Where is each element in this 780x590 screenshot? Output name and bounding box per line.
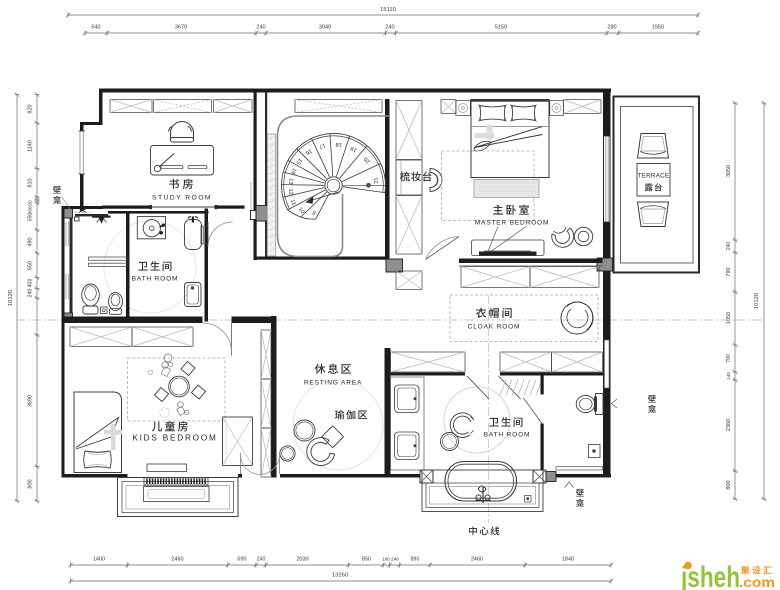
svg-text:650: 650 xyxy=(28,261,34,270)
svg-text:13: 13 xyxy=(287,178,294,185)
svg-text:STUDY ROOM: STUDY ROOM xyxy=(152,195,212,202)
svg-text:890: 890 xyxy=(411,557,420,563)
svg-text:820: 820 xyxy=(28,104,34,113)
svg-text:160: 160 xyxy=(382,557,390,562)
svg-text:2460: 2460 xyxy=(471,557,483,563)
svg-text:240: 240 xyxy=(257,557,266,563)
svg-text:1840: 1840 xyxy=(562,557,574,563)
svg-text:1950: 1950 xyxy=(652,25,664,31)
svg-text:BATH ROOM: BATH ROOM xyxy=(132,276,179,283)
svg-text:650: 650 xyxy=(28,213,34,222)
svg-text:540: 540 xyxy=(91,25,100,31)
svg-text:1140: 1140 xyxy=(28,140,34,152)
svg-text:300(30: 300(30 xyxy=(28,200,33,214)
svg-text:790: 790 xyxy=(726,267,732,276)
svg-text:18: 18 xyxy=(335,141,342,148)
svg-text:2460: 2460 xyxy=(171,557,183,563)
svg-text:3040: 3040 xyxy=(319,25,331,31)
svg-text:850: 850 xyxy=(362,557,371,563)
svg-text:810: 810 xyxy=(28,178,34,187)
svg-text:10120: 10120 xyxy=(754,293,760,309)
svg-text:240: 240 xyxy=(28,289,34,298)
svg-text:10120: 10120 xyxy=(8,290,14,306)
svg-text:280: 280 xyxy=(607,25,616,31)
svg-text:2360: 2360 xyxy=(726,419,732,431)
svg-text:1400: 1400 xyxy=(93,557,105,563)
svg-text:BATH ROOM: BATH ROOM xyxy=(484,432,531,439)
svg-text:690: 690 xyxy=(237,557,246,563)
svg-text:3690: 3690 xyxy=(28,395,34,407)
svg-text:140: 140 xyxy=(726,372,731,380)
svg-text:240: 240 xyxy=(385,25,394,31)
svg-text:3050: 3050 xyxy=(726,165,732,177)
svg-text:CLOAK ROOM: CLOAK ROOM xyxy=(468,324,521,331)
svg-text:TERRACE: TERRACE xyxy=(638,173,670,180)
svg-text:21: 21 xyxy=(373,177,380,184)
svg-text:RESTING AREA: RESTING AREA xyxy=(304,380,362,387)
svg-text:3670: 3670 xyxy=(175,25,187,31)
svg-text:13260: 13260 xyxy=(332,573,348,579)
svg-text:790: 790 xyxy=(726,354,732,363)
svg-text:5150: 5150 xyxy=(495,25,507,31)
svg-text:400: 400 xyxy=(28,279,34,288)
svg-text:15110: 15110 xyxy=(380,7,396,13)
svg-text:MASTER BEDROOM: MASTER BEDROOM xyxy=(475,220,550,227)
svg-text:240: 240 xyxy=(391,557,399,562)
svg-text:240: 240 xyxy=(726,242,732,251)
svg-text:1050: 1050 xyxy=(726,312,732,324)
svg-text:2030: 2030 xyxy=(296,557,308,563)
svg-text:12: 12 xyxy=(287,188,294,195)
svg-text:240: 240 xyxy=(256,25,265,31)
svg-text:800: 800 xyxy=(726,480,732,489)
svg-text:490: 490 xyxy=(28,237,34,246)
svg-text:KIDS BEDROOM: KIDS BEDROOM xyxy=(132,434,217,443)
svg-text:800: 800 xyxy=(28,479,34,488)
svg-text:.com: .com xyxy=(739,574,775,590)
